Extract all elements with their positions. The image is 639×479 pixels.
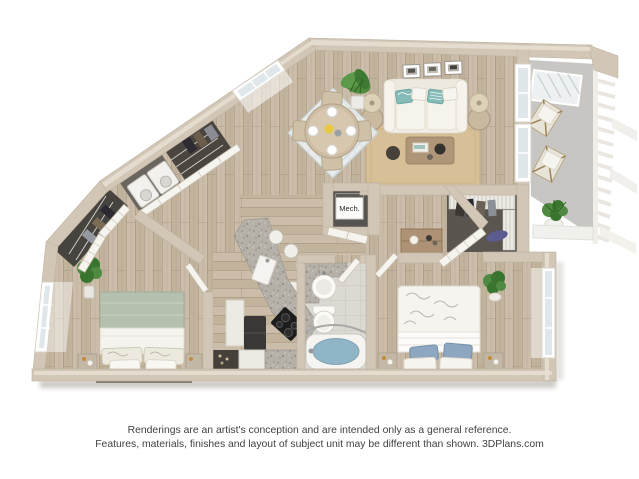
wall-bath-right xyxy=(366,255,376,369)
wall-bedroom1-top-west xyxy=(398,253,443,263)
balcony-lower-slab xyxy=(533,225,593,240)
bathtub xyxy=(306,334,366,369)
wall-bath-left xyxy=(297,255,305,369)
dresser xyxy=(401,229,442,254)
wall-bedroom2-right xyxy=(203,292,213,369)
dining-table xyxy=(305,104,359,158)
kitchen-cabinet-tall xyxy=(226,300,244,346)
centerpiece xyxy=(325,125,334,134)
page: Mech. xyxy=(0,0,639,479)
curtain-glow xyxy=(531,268,542,358)
vase xyxy=(435,144,446,155)
kitchen-counter-granite xyxy=(265,350,302,369)
mech-closet: Mech. xyxy=(333,191,368,227)
balcony-railing xyxy=(596,68,615,241)
tub-faucet xyxy=(309,349,314,354)
window-bedroom1 xyxy=(542,268,555,358)
brand: 3DPlans.com xyxy=(482,439,544,450)
wall-mech-right xyxy=(368,183,380,235)
sofa xyxy=(384,79,467,133)
disclaimer-line-2-text: Features, materials, finishes and layout… xyxy=(95,439,479,450)
wire-shelf-right xyxy=(503,210,515,250)
floor-plan: Mech. xyxy=(0,0,639,479)
toilet xyxy=(313,306,335,333)
disclaimer: Renderings are an artist's conception an… xyxy=(0,424,639,452)
disclaimer-line-2: Features, materials, finishes and layout… xyxy=(0,438,639,452)
coffee-table xyxy=(406,137,454,164)
balcony-plant xyxy=(542,200,568,229)
wall-bedroom1-top-east xyxy=(483,252,543,262)
railing-post xyxy=(593,62,598,244)
side-table-right xyxy=(468,94,490,131)
balcony xyxy=(528,60,637,254)
wall-walkin-east xyxy=(517,185,529,252)
wall-bath-top-west xyxy=(297,255,335,263)
balcony-glass-panel xyxy=(530,70,581,106)
mech-label: Mech. xyxy=(339,204,359,213)
pouf xyxy=(386,146,400,160)
adjacent-balcony-slabs xyxy=(600,118,637,254)
disclaimer-line-1: Renderings are an artist's conception an… xyxy=(0,424,639,438)
kitchen-counter-south xyxy=(239,350,265,369)
